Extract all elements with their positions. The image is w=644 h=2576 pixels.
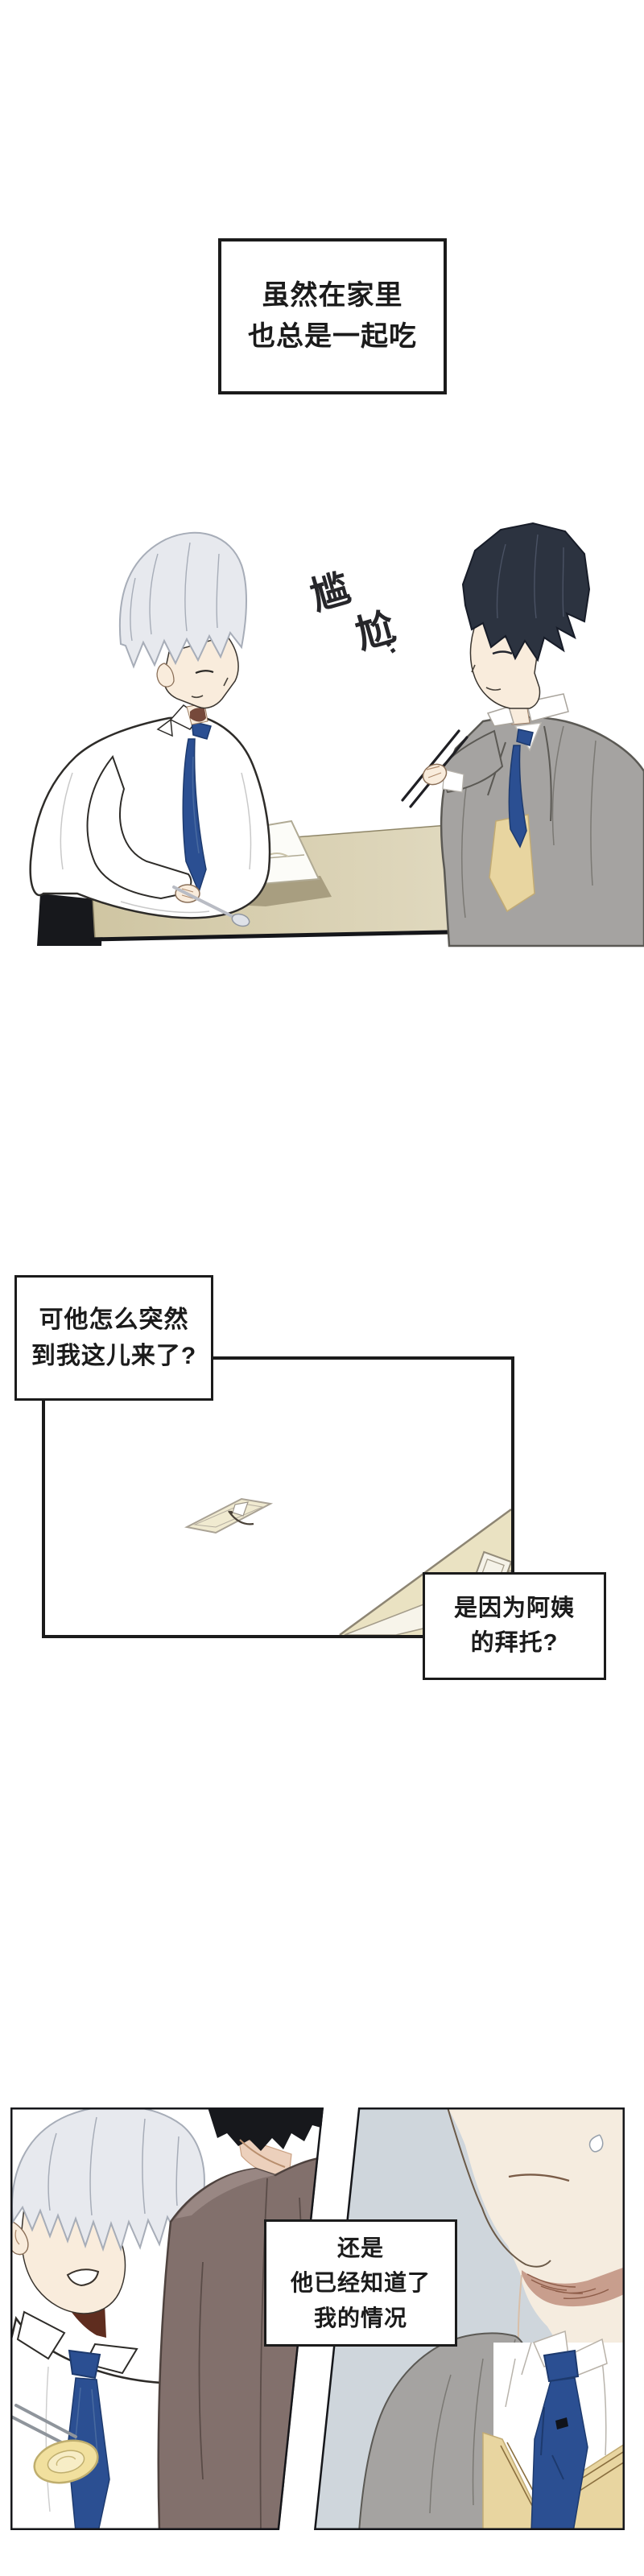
character-left	[31, 533, 270, 928]
comic-page: 虽然在家里 也总是一起吃 尴 尬 ..	[0, 0, 644, 2576]
caption-4-line-1: 还是	[337, 2231, 384, 2265]
caption-2-line-2: 到我这儿来了?	[31, 1338, 196, 1374]
sfx-awkward-text: 尴 尬 ..	[306, 567, 413, 658]
caption-3-line-1: 是因为阿姨	[454, 1591, 575, 1627]
caption-1-line-2: 也总是一起吃	[248, 316, 417, 357]
sfx-char-1: 尴	[306, 567, 355, 618]
caption-box-1: 虽然在家里 也总是一起吃	[218, 238, 447, 394]
notepad	[187, 1499, 270, 1533]
caption-box-4: 还是 他已经知道了 我的情况	[264, 2219, 457, 2347]
caption-4-line-3: 我的情况	[314, 2301, 407, 2335]
character-left-neck-shadow	[190, 708, 206, 721]
caption-2-line-1: 可他怎么突然	[39, 1302, 189, 1338]
panel-dining-scene: 尴 尬 ..	[0, 515, 644, 950]
caption-1-line-1: 虽然在家里	[262, 275, 403, 316]
caption-4-line-2: 他已经知道了	[291, 2265, 431, 2300]
caption-box-3: 是因为阿姨 的拜托?	[423, 1572, 606, 1680]
caption-box-2: 可他怎么突然 到我这儿来了?	[14, 1275, 213, 1401]
caption-3-line-2: 的拜托?	[471, 1626, 559, 1662]
